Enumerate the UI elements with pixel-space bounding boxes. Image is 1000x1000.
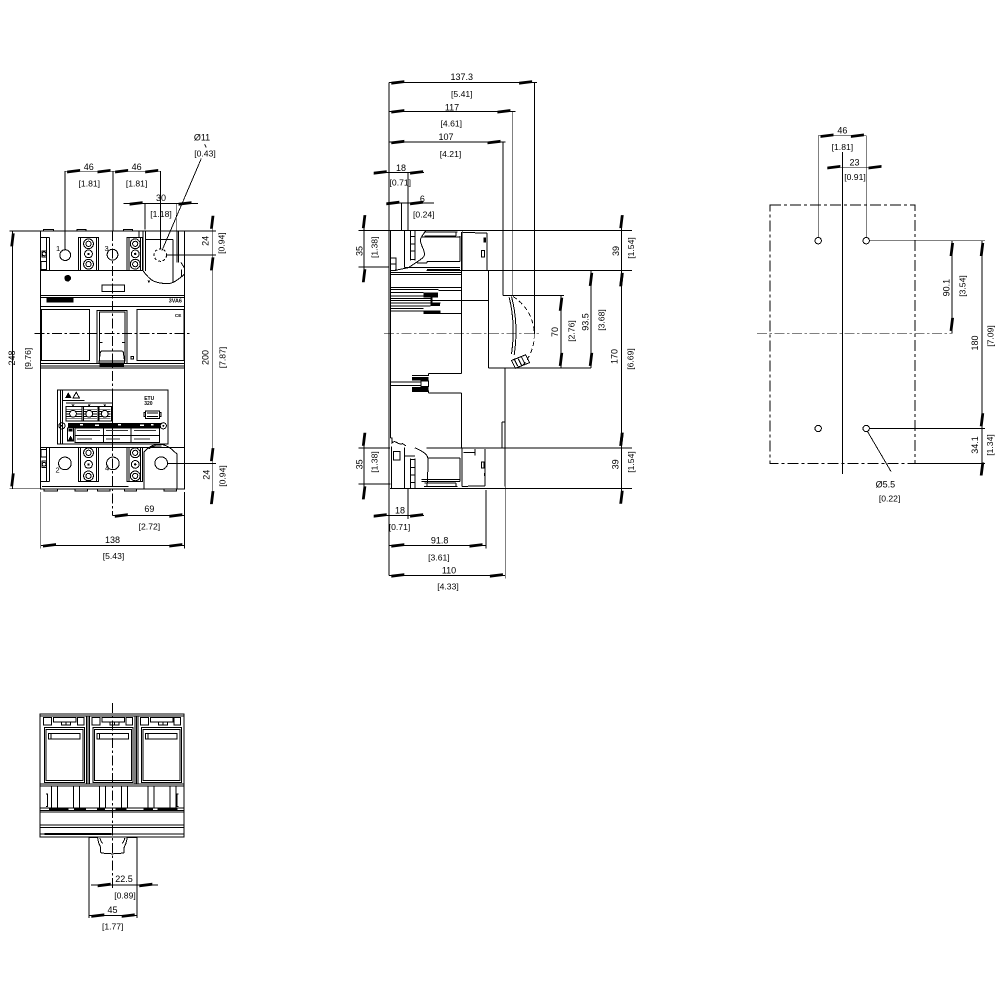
- svg-text:[4.33]: [4.33]: [437, 582, 459, 592]
- svg-text:69: 69: [144, 504, 154, 514]
- svg-text:18: 18: [396, 163, 406, 173]
- svg-text:[3.61]: [3.61]: [428, 552, 450, 562]
- svg-text:[1.38]: [1.38]: [370, 237, 380, 259]
- svg-text:[5.43]: [5.43]: [103, 551, 125, 561]
- svg-text:[2.76]: [2.76]: [567, 320, 577, 342]
- svg-text:39: 39: [611, 246, 621, 256]
- svg-text:[1.81]: [1.81]: [79, 178, 101, 188]
- svg-text:45: 45: [107, 905, 117, 915]
- svg-text:91.8: 91.8: [431, 535, 449, 545]
- svg-text:[1.34]: [1.34]: [985, 434, 995, 456]
- svg-text:CE: CE: [175, 313, 181, 318]
- svg-text:[5.41]: [5.41]: [451, 89, 473, 99]
- svg-text:46: 46: [837, 126, 847, 136]
- svg-text:[0.24]: [0.24]: [413, 210, 435, 220]
- svg-text:[1.77]: [1.77]: [102, 921, 124, 931]
- svg-text:[0.94]: [0.94]: [217, 232, 227, 254]
- svg-text:Ø11: Ø11: [194, 132, 210, 142]
- svg-text:180: 180: [970, 335, 980, 350]
- svg-text:[1.81]: [1.81]: [832, 142, 854, 152]
- svg-text:[0.22]: [0.22]: [879, 494, 901, 504]
- svg-text:[0.71]: [0.71]: [390, 178, 412, 188]
- svg-text:[3.54]: [3.54]: [957, 275, 967, 297]
- svg-text:200: 200: [200, 350, 210, 365]
- svg-text:70: 70: [550, 327, 560, 337]
- svg-text:[1.81]: [1.81]: [126, 178, 148, 188]
- svg-text:34.1: 34.1: [970, 436, 980, 454]
- svg-text:107: 107: [438, 132, 453, 142]
- svg-text:3VA6: 3VA6: [169, 298, 182, 304]
- svg-text:[0.71]: [0.71]: [389, 522, 411, 532]
- svg-text:Ø5.5: Ø5.5: [876, 479, 896, 489]
- svg-text:35: 35: [355, 459, 365, 469]
- svg-text:1: 1: [56, 244, 60, 253]
- svg-text:23: 23: [849, 157, 859, 167]
- svg-text:39: 39: [610, 459, 620, 469]
- svg-text:248: 248: [7, 350, 17, 365]
- svg-text:[1.38]: [1.38]: [369, 451, 379, 473]
- svg-text:137.3: 137.3: [451, 72, 474, 82]
- svg-text:[0.43]: [0.43]: [194, 149, 216, 159]
- svg-text:[7.09]: [7.09]: [986, 325, 996, 347]
- svg-text:110: 110: [442, 565, 456, 575]
- svg-text:170: 170: [610, 349, 620, 364]
- svg-text:[1.54]: [1.54]: [626, 451, 636, 473]
- svg-text:46: 46: [84, 162, 94, 172]
- svg-text:[0.89]: [0.89]: [114, 891, 136, 901]
- svg-text:[6.69]: [6.69]: [626, 348, 636, 370]
- svg-text:[1.54]: [1.54]: [626, 237, 636, 259]
- svg-text:138: 138: [105, 535, 120, 545]
- svg-text:[2.72]: [2.72]: [139, 522, 161, 532]
- svg-text:24: 24: [202, 470, 212, 480]
- svg-text:24: 24: [201, 236, 211, 246]
- svg-text:[1.18]: [1.18]: [150, 209, 172, 219]
- svg-text:22.5: 22.5: [115, 874, 133, 884]
- svg-text:117: 117: [445, 102, 459, 112]
- svg-text:SIEMENS: SIEMENS: [51, 299, 69, 303]
- svg-text:35: 35: [355, 246, 365, 256]
- svg-text:[4.61]: [4.61]: [441, 119, 463, 129]
- svg-text:[3.68]: [3.68]: [597, 309, 607, 331]
- svg-text:[0.94]: [0.94]: [217, 465, 227, 487]
- svg-text:18: 18: [395, 506, 405, 516]
- svg-text:93.5: 93.5: [581, 313, 591, 331]
- svg-text:6: 6: [420, 194, 425, 204]
- svg-text:46: 46: [132, 162, 142, 172]
- svg-text:30: 30: [156, 193, 166, 203]
- svg-text:[0.91]: [0.91]: [844, 172, 866, 182]
- svg-text:[9.76]: [9.76]: [23, 348, 33, 370]
- svg-text:[7.87]: [7.87]: [218, 347, 228, 369]
- svg-text:320: 320: [144, 401, 153, 407]
- svg-text:[4.21]: [4.21]: [440, 149, 462, 159]
- svg-text:90.1: 90.1: [941, 279, 951, 297]
